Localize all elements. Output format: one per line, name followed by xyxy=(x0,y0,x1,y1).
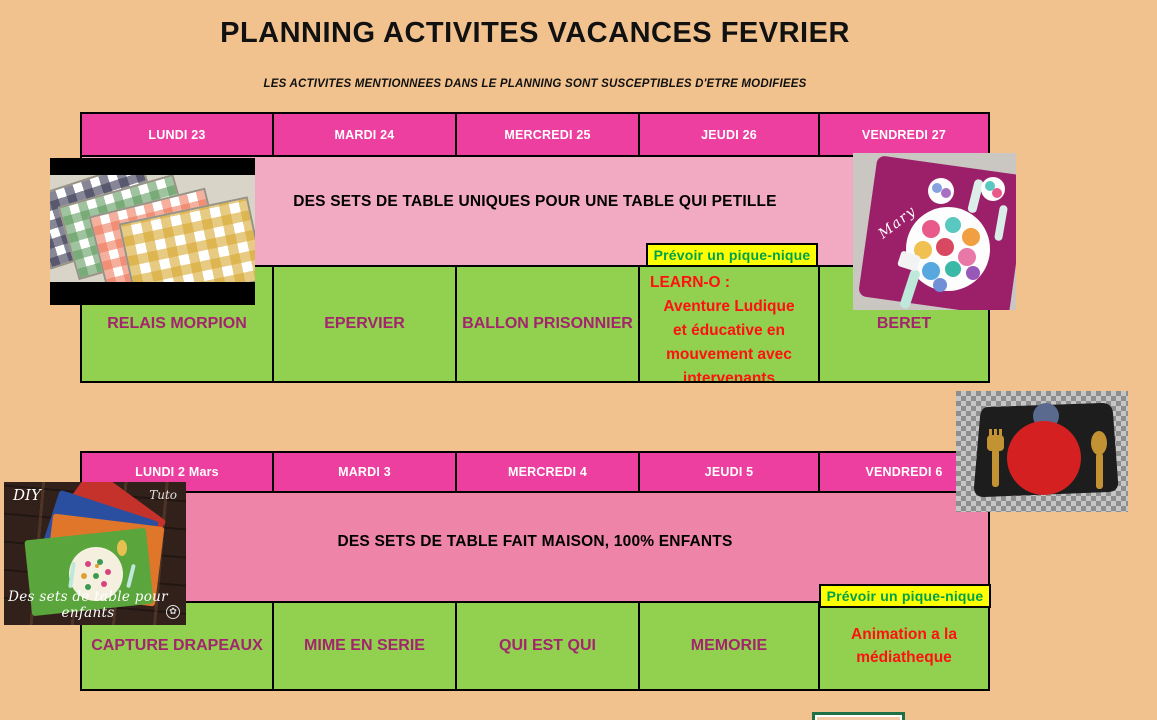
activity-cell-qui-est-qui: QUI EST QUI xyxy=(457,603,638,689)
activity-cell-ballon-prisonnier: BALLON PRISONNIER xyxy=(457,267,638,381)
week2-day-mercredi: MERCREDI 4 xyxy=(457,453,638,491)
activity-cell-mime-en-serie: MIME EN SERIE xyxy=(274,603,455,689)
activity-cell-memorie: MEMORIE xyxy=(640,603,818,689)
diy-badge: DIY xyxy=(13,486,41,504)
week1-day-mercredi: MERCREDI 25 xyxy=(457,114,638,155)
tuto-badge: Tuto xyxy=(149,488,177,502)
picnic-note-week1: Prévoir un pique-nique xyxy=(646,243,818,267)
learn-o-details: Aventure Ludique et éducative en mouveme… xyxy=(663,295,794,381)
page-subtitle: LES ACTIVITES MENTIONNEES DANS LE PLANNI… xyxy=(80,78,990,90)
mary-placemat-art: Mary xyxy=(853,153,1016,310)
activity-cell-epervier: EPERVIER xyxy=(274,267,455,381)
black-placemat-art xyxy=(956,391,1128,512)
week1-day-jeudi: JEUDI 26 xyxy=(640,114,818,155)
diy-caption: Des sets de table pour enfants xyxy=(4,589,172,621)
picnic-note-week2: Prévoir un pique-nique xyxy=(819,584,991,608)
week2-day-jeudi: JEUDI 5 xyxy=(640,453,818,491)
week1-day-mardi: MARDI 24 xyxy=(274,114,455,155)
week2-day-mardi: MARDI 3 xyxy=(274,453,455,491)
page-title: PLANNING ACTIVITES VACANCES FEVRIER xyxy=(80,17,990,50)
learn-o-title: LEARN-O : xyxy=(642,271,730,295)
week1-day-lundi: LUNDI 23 xyxy=(82,114,272,155)
week2-table: LUNDI 2 Mars MARDI 3 MERCREDI 4 JEUDI 5 … xyxy=(80,451,990,691)
activity-cell-learn-o: LEARN-O : Aventure Ludique et éducative … xyxy=(640,267,818,381)
photo-gingham-placemats xyxy=(50,158,255,305)
activity-cell-mediatheque: Animation a la médiatheque xyxy=(820,603,988,689)
gingham-photo-area xyxy=(50,175,255,282)
photo-diy-placemats: DIY Tuto Des sets de table pour enfants … xyxy=(4,482,186,625)
planning-page: PLANNING ACTIVITES VACANCES FEVRIER LES … xyxy=(0,0,1157,720)
photo-black-placemat xyxy=(956,391,1128,512)
photo-mary-placemat: Mary xyxy=(853,153,1016,310)
logo-stamp-icon: ✿ xyxy=(166,605,180,619)
week1-day-vendredi: VENDREDI 27 xyxy=(820,114,988,155)
partial-box-bottom xyxy=(812,712,905,720)
